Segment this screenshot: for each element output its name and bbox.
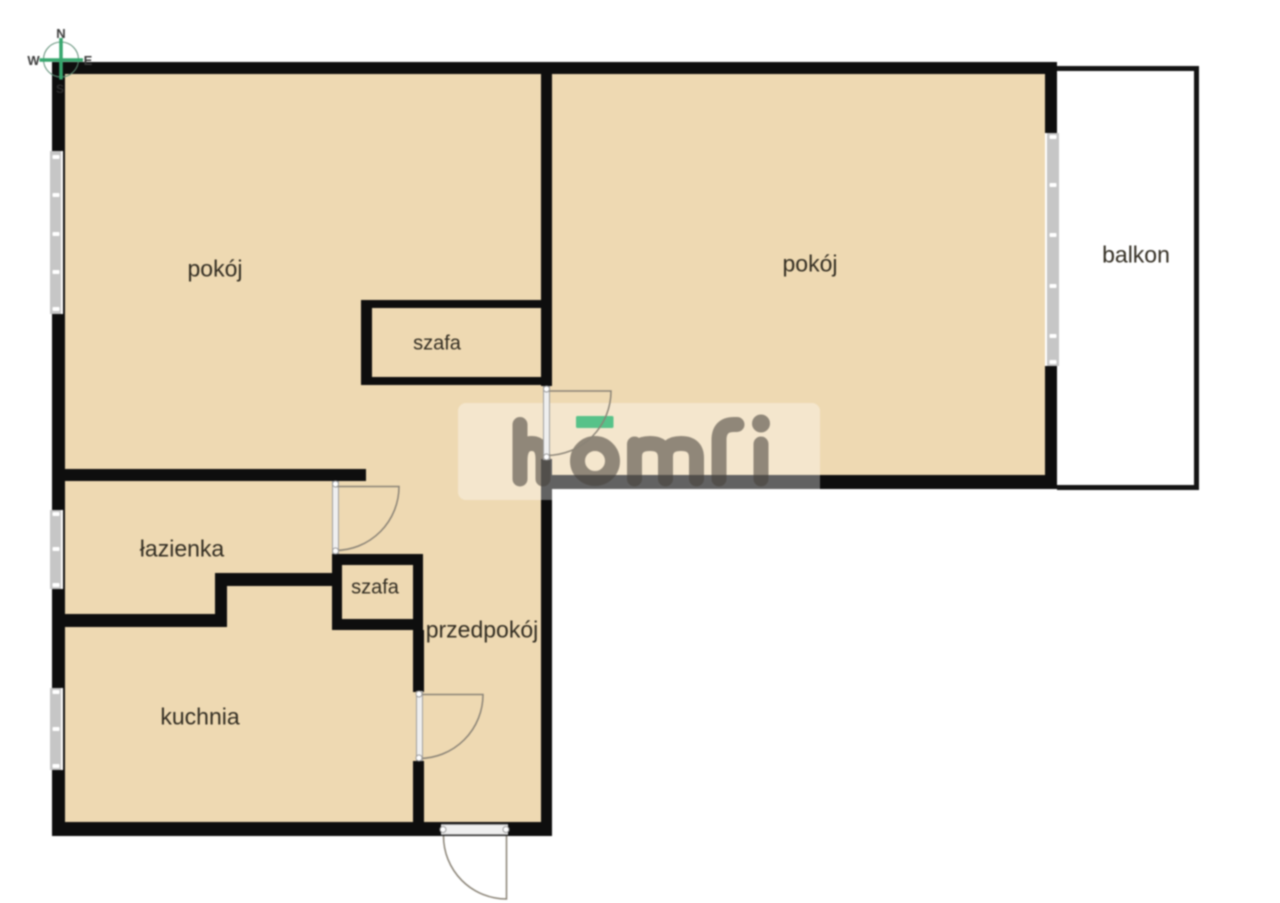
- svg-text:N: N: [56, 26, 65, 41]
- svg-text:E: E: [84, 53, 93, 68]
- svg-text:S: S: [56, 82, 64, 96]
- svg-text:W: W: [27, 53, 40, 68]
